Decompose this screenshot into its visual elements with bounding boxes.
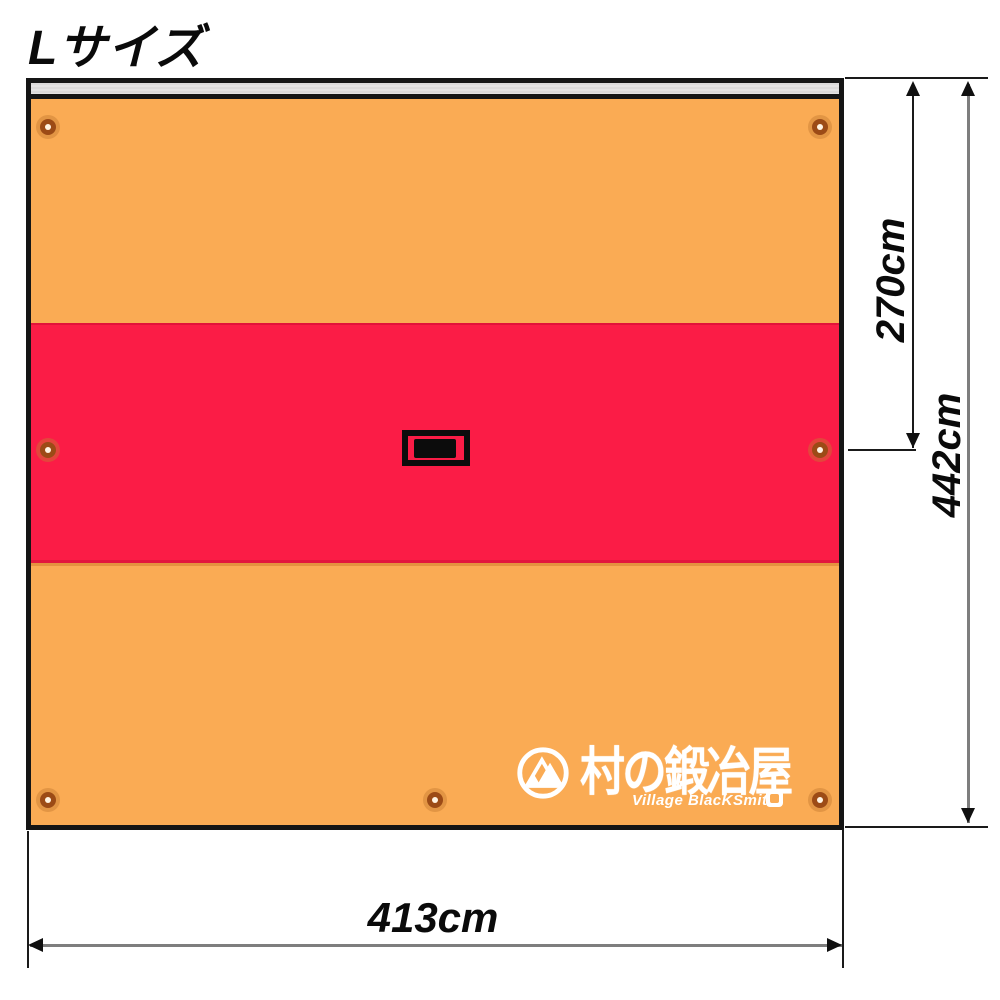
mountain-circle-icon [516,746,570,800]
dimension-label-width: 413cm [313,895,553,941]
tarp-top-sleeve [31,83,839,99]
center-handle-fill [414,439,456,458]
dimension-label-upper-height: 270cm [869,180,913,380]
grommet-middle-right [812,442,828,458]
arrowhead-down-270 [906,433,920,448]
product-size-diagram: Lサイズ 村の鍛冶屋 Village BlacKSmith [0,0,1000,1000]
logo-english-name: Village BlacKSmith [632,792,777,809]
extension-line-bottom-right-v [842,829,844,968]
brand-logo: 村の鍛冶屋 Village BlacKSmith [514,726,804,818]
dimension-label-total-height: 442cm [925,355,969,555]
grommet-middle-left [40,442,56,458]
grommet-bottom-center [427,792,443,808]
tarp-band-orange-top [31,99,839,323]
extension-line-bottom-right [845,826,988,828]
center-handle [402,430,470,466]
extension-line-middle [848,449,916,451]
grommet-top-left [40,119,56,135]
dimension-line-413 [30,944,842,947]
arrowhead-left-413 [28,938,43,952]
arrowhead-right-413 [827,938,842,952]
grommet-top-right [812,119,828,135]
grommet-bottom-left [40,792,56,808]
grommet-bottom-right [812,792,828,808]
logo-stamp-icon [766,790,783,807]
arrowhead-up-442 [961,81,975,96]
size-title: Lサイズ [28,8,204,78]
extension-line-top [845,77,988,79]
arrowhead-down-442 [961,808,975,823]
arrowhead-up-270 [906,81,920,96]
